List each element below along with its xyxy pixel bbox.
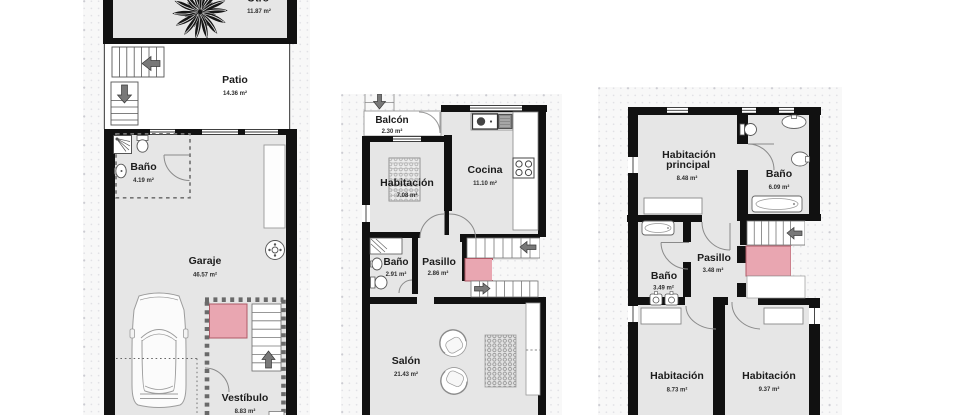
svg-text:Salón: Salón — [392, 355, 421, 367]
svg-text:3.48 m²: 3.48 m² — [703, 267, 724, 274]
svg-text:2.91 m²: 2.91 m² — [386, 271, 407, 278]
svg-text:Baño: Baño — [384, 257, 409, 268]
svg-text:9.37 m²: 9.37 m² — [759, 386, 780, 393]
svg-text:Pasillo: Pasillo — [422, 256, 456, 268]
svg-text:11.10 m²: 11.10 m² — [473, 180, 497, 187]
svg-text:Baño: Baño — [651, 270, 677, 282]
svg-text:Habitación: Habitación — [742, 370, 796, 382]
svg-text:6.09 m²: 6.09 m² — [769, 184, 790, 191]
svg-text:Patio: Patio — [222, 74, 248, 86]
svg-text:Balcón: Balcón — [375, 115, 408, 126]
svg-text:46.57 m²: 46.57 m² — [193, 272, 217, 279]
svg-text:8.73 m²: 8.73 m² — [667, 387, 688, 394]
svg-text:Cocina: Cocina — [467, 164, 502, 176]
svg-text:Pasillo: Pasillo — [697, 252, 731, 264]
svg-text:4.19 m²: 4.19 m² — [133, 177, 154, 184]
svg-text:Baño: Baño — [766, 168, 792, 180]
svg-text:7.08 m²: 7.08 m² — [397, 192, 418, 199]
svg-text:11.87 m²: 11.87 m² — [247, 8, 271, 15]
svg-text:8.83 m²: 8.83 m² — [235, 408, 256, 415]
svg-text:Vestíbulo: Vestíbulo — [222, 392, 269, 404]
svg-text:Habitación: Habitación — [650, 370, 704, 382]
svg-text:21.43 m²: 21.43 m² — [394, 371, 418, 378]
svg-text:14.36 m²: 14.36 m² — [223, 90, 247, 97]
svg-text:8.48 m²: 8.48 m² — [677, 175, 698, 182]
svg-text:principal: principal — [666, 159, 710, 171]
svg-text:Habitación: Habitación — [380, 177, 434, 189]
svg-text:3.49 m²: 3.49 m² — [653, 285, 674, 292]
svg-text:Baño: Baño — [130, 161, 156, 173]
svg-text:2.30 m²: 2.30 m² — [382, 128, 403, 135]
svg-text:Garaje: Garaje — [189, 255, 222, 267]
svg-text:2.86 m²: 2.86 m² — [428, 270, 449, 277]
svg-text:Otro: Otro — [247, 0, 269, 5]
